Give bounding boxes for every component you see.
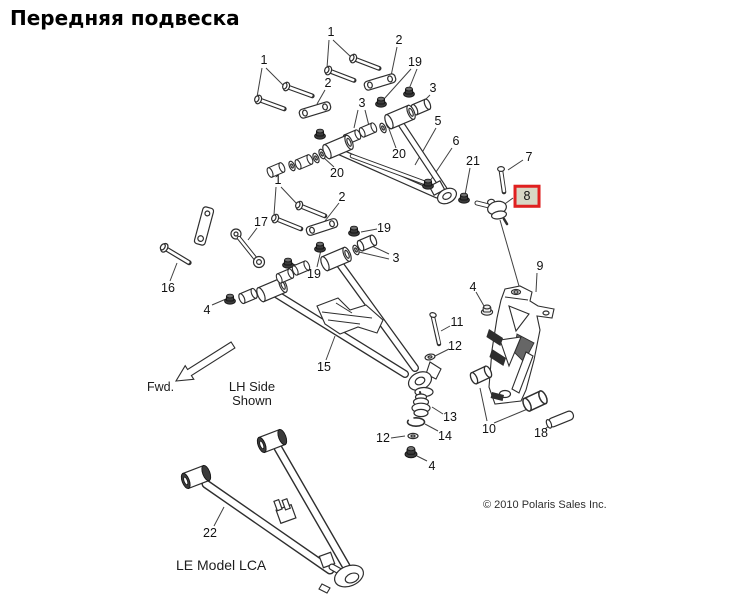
stabilizer-link-plate [194, 206, 214, 246]
pin-bolt [498, 167, 505, 192]
lock-nut [315, 129, 326, 139]
knuckle-group [469, 286, 575, 429]
lock-nut [315, 242, 326, 252]
part-callout-19[interactable]: 19 [377, 222, 391, 235]
flat-washer [425, 353, 436, 361]
part-callout-14[interactable]: 14 [438, 430, 452, 443]
part-callout-12[interactable]: 12 [376, 432, 390, 445]
part-callout-4[interactable]: 4 [470, 281, 477, 294]
tie-rod-end-group [477, 167, 508, 224]
lock-nut [283, 258, 294, 268]
part-callout-8[interactable]: 8 [514, 185, 541, 208]
pivot-bolt [348, 53, 380, 72]
lower-control-arm-assembly [159, 200, 441, 458]
side-shown-line1: LH Side [206, 380, 298, 394]
bushing [294, 154, 314, 170]
fwd-label: Fwd. [147, 380, 174, 394]
part-callout-19[interactable]: 19 [408, 56, 422, 69]
part-callout-15[interactable]: 15 [317, 361, 331, 374]
part-callout-2[interactable]: 2 [325, 77, 332, 90]
castle-nut [405, 447, 417, 458]
part-callout-20[interactable]: 20 [392, 148, 406, 161]
bushing [238, 288, 259, 305]
part-callout-1[interactable]: 1 [328, 26, 335, 39]
ball-joint-nut [459, 193, 470, 203]
part-callout-21[interactable]: 21 [466, 155, 480, 168]
link-rod [231, 229, 265, 268]
pivot-bolt [253, 94, 285, 113]
pivot-bolt [270, 213, 302, 233]
part-callout-1[interactable]: 1 [275, 174, 282, 187]
part-callout-6[interactable]: 6 [453, 135, 460, 148]
part-callout-4[interactable]: 4 [204, 304, 211, 317]
flange-nut [481, 305, 492, 315]
part-callout-9[interactable]: 9 [537, 260, 544, 273]
upper-control-arm-assembly [253, 53, 469, 207]
pivot-pin [545, 410, 575, 429]
side-shown-line2: Shown [206, 394, 298, 408]
pivot-sleeve [305, 218, 338, 236]
upper-mount-bolt [429, 312, 439, 344]
shock-clevis [273, 496, 296, 523]
flat-washer [408, 433, 418, 438]
part-callout-1[interactable]: 1 [261, 54, 268, 67]
part-callout-12[interactable]: 12 [448, 340, 462, 353]
tie-rod-end [477, 199, 508, 224]
copyright-notice: © 2010 Polaris Sales Inc. [483, 499, 607, 511]
exploded-diagram-canvas [0, 0, 729, 610]
link-bolt [159, 242, 192, 267]
part-callout-22[interactable]: 22 [203, 527, 217, 540]
part-callout-19[interactable]: 19 [307, 268, 321, 281]
part-callout-11[interactable]: 11 [451, 316, 464, 329]
part-callout-18[interactable]: 18 [534, 427, 548, 440]
callout-leader-lines [170, 40, 555, 526]
part-callout-13[interactable]: 13 [443, 411, 457, 424]
part-callout-2[interactable]: 2 [396, 34, 403, 47]
part-callout-2[interactable]: 2 [339, 191, 346, 204]
fwd-arrow [176, 342, 235, 381]
bushing [275, 268, 295, 284]
part-callout-3[interactable]: 3 [393, 252, 400, 265]
lock-nut [349, 226, 360, 236]
part-callout-16[interactable]: 16 [161, 282, 175, 295]
snap-ring [408, 418, 425, 426]
bushing [356, 234, 378, 252]
part-callout-3[interactable]: 3 [430, 82, 437, 95]
pivot-bolt [294, 200, 326, 220]
part-callout-3[interactable]: 3 [359, 97, 366, 110]
part-callout-10[interactable]: 10 [482, 423, 496, 436]
part-callout-7[interactable]: 7 [526, 151, 533, 164]
parts-diagram-page: Передняя подвеска [0, 0, 729, 610]
pivot-sleeve [363, 73, 396, 91]
side-shown-note: LH Side Shown [206, 380, 298, 407]
page-title: Передняя подвеска [10, 6, 240, 30]
flange-nut [225, 294, 236, 304]
part-callout-4[interactable]: 4 [429, 460, 436, 473]
part-callout-17[interactable]: 17 [254, 216, 268, 229]
model-variant-label: LE Model LCA [176, 557, 266, 573]
part-callout-20[interactable]: 20 [330, 167, 344, 180]
pivot-bolt [281, 81, 313, 100]
knuckle-bushing [521, 390, 549, 413]
pivot-sleeve [298, 101, 331, 119]
lock-nut [404, 87, 415, 97]
part-callout-5[interactable]: 5 [435, 115, 442, 128]
